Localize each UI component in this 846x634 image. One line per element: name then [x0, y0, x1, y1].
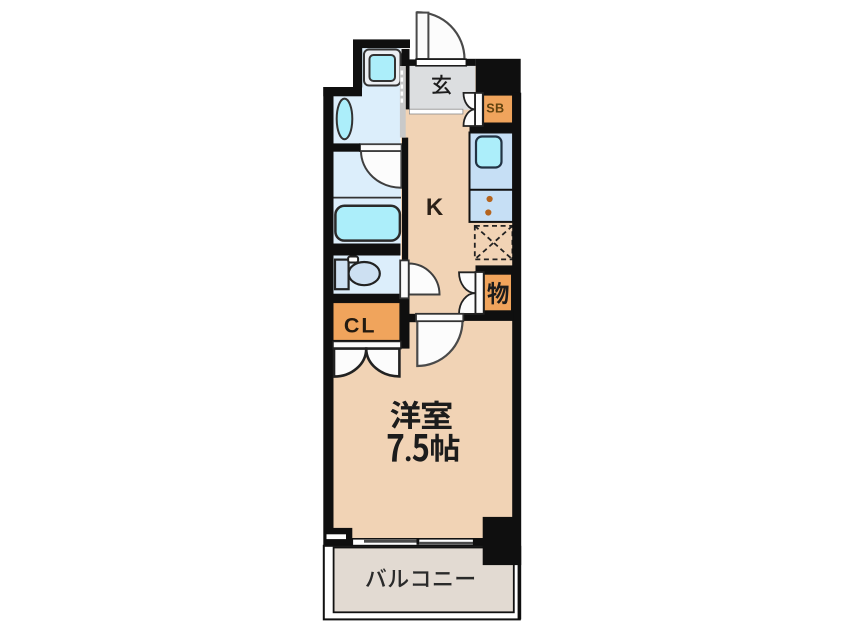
svg-text:CL: CL [344, 314, 377, 338]
svg-text:SB: SB [486, 102, 504, 116]
svg-text:K: K [426, 194, 444, 221]
